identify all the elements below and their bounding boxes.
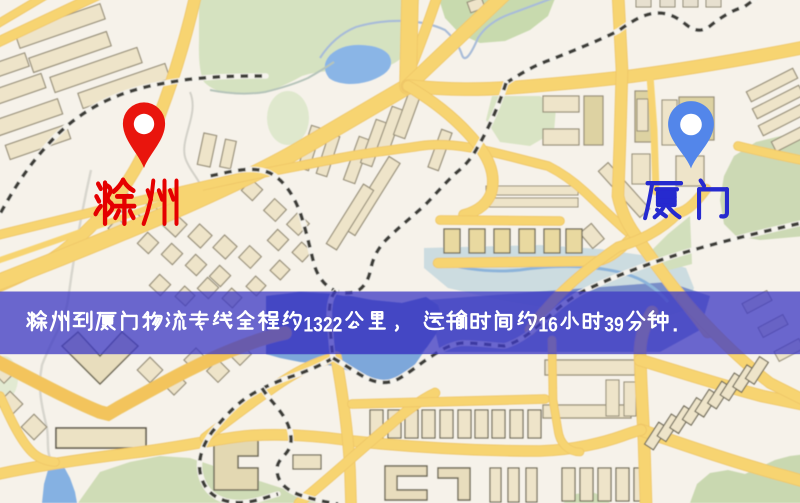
svg-text:1322: 1322 [303,313,342,337]
svg-text:16: 16 [538,313,558,337]
svg-text:.: . [672,313,678,337]
svg-text:39: 39 [604,313,624,337]
